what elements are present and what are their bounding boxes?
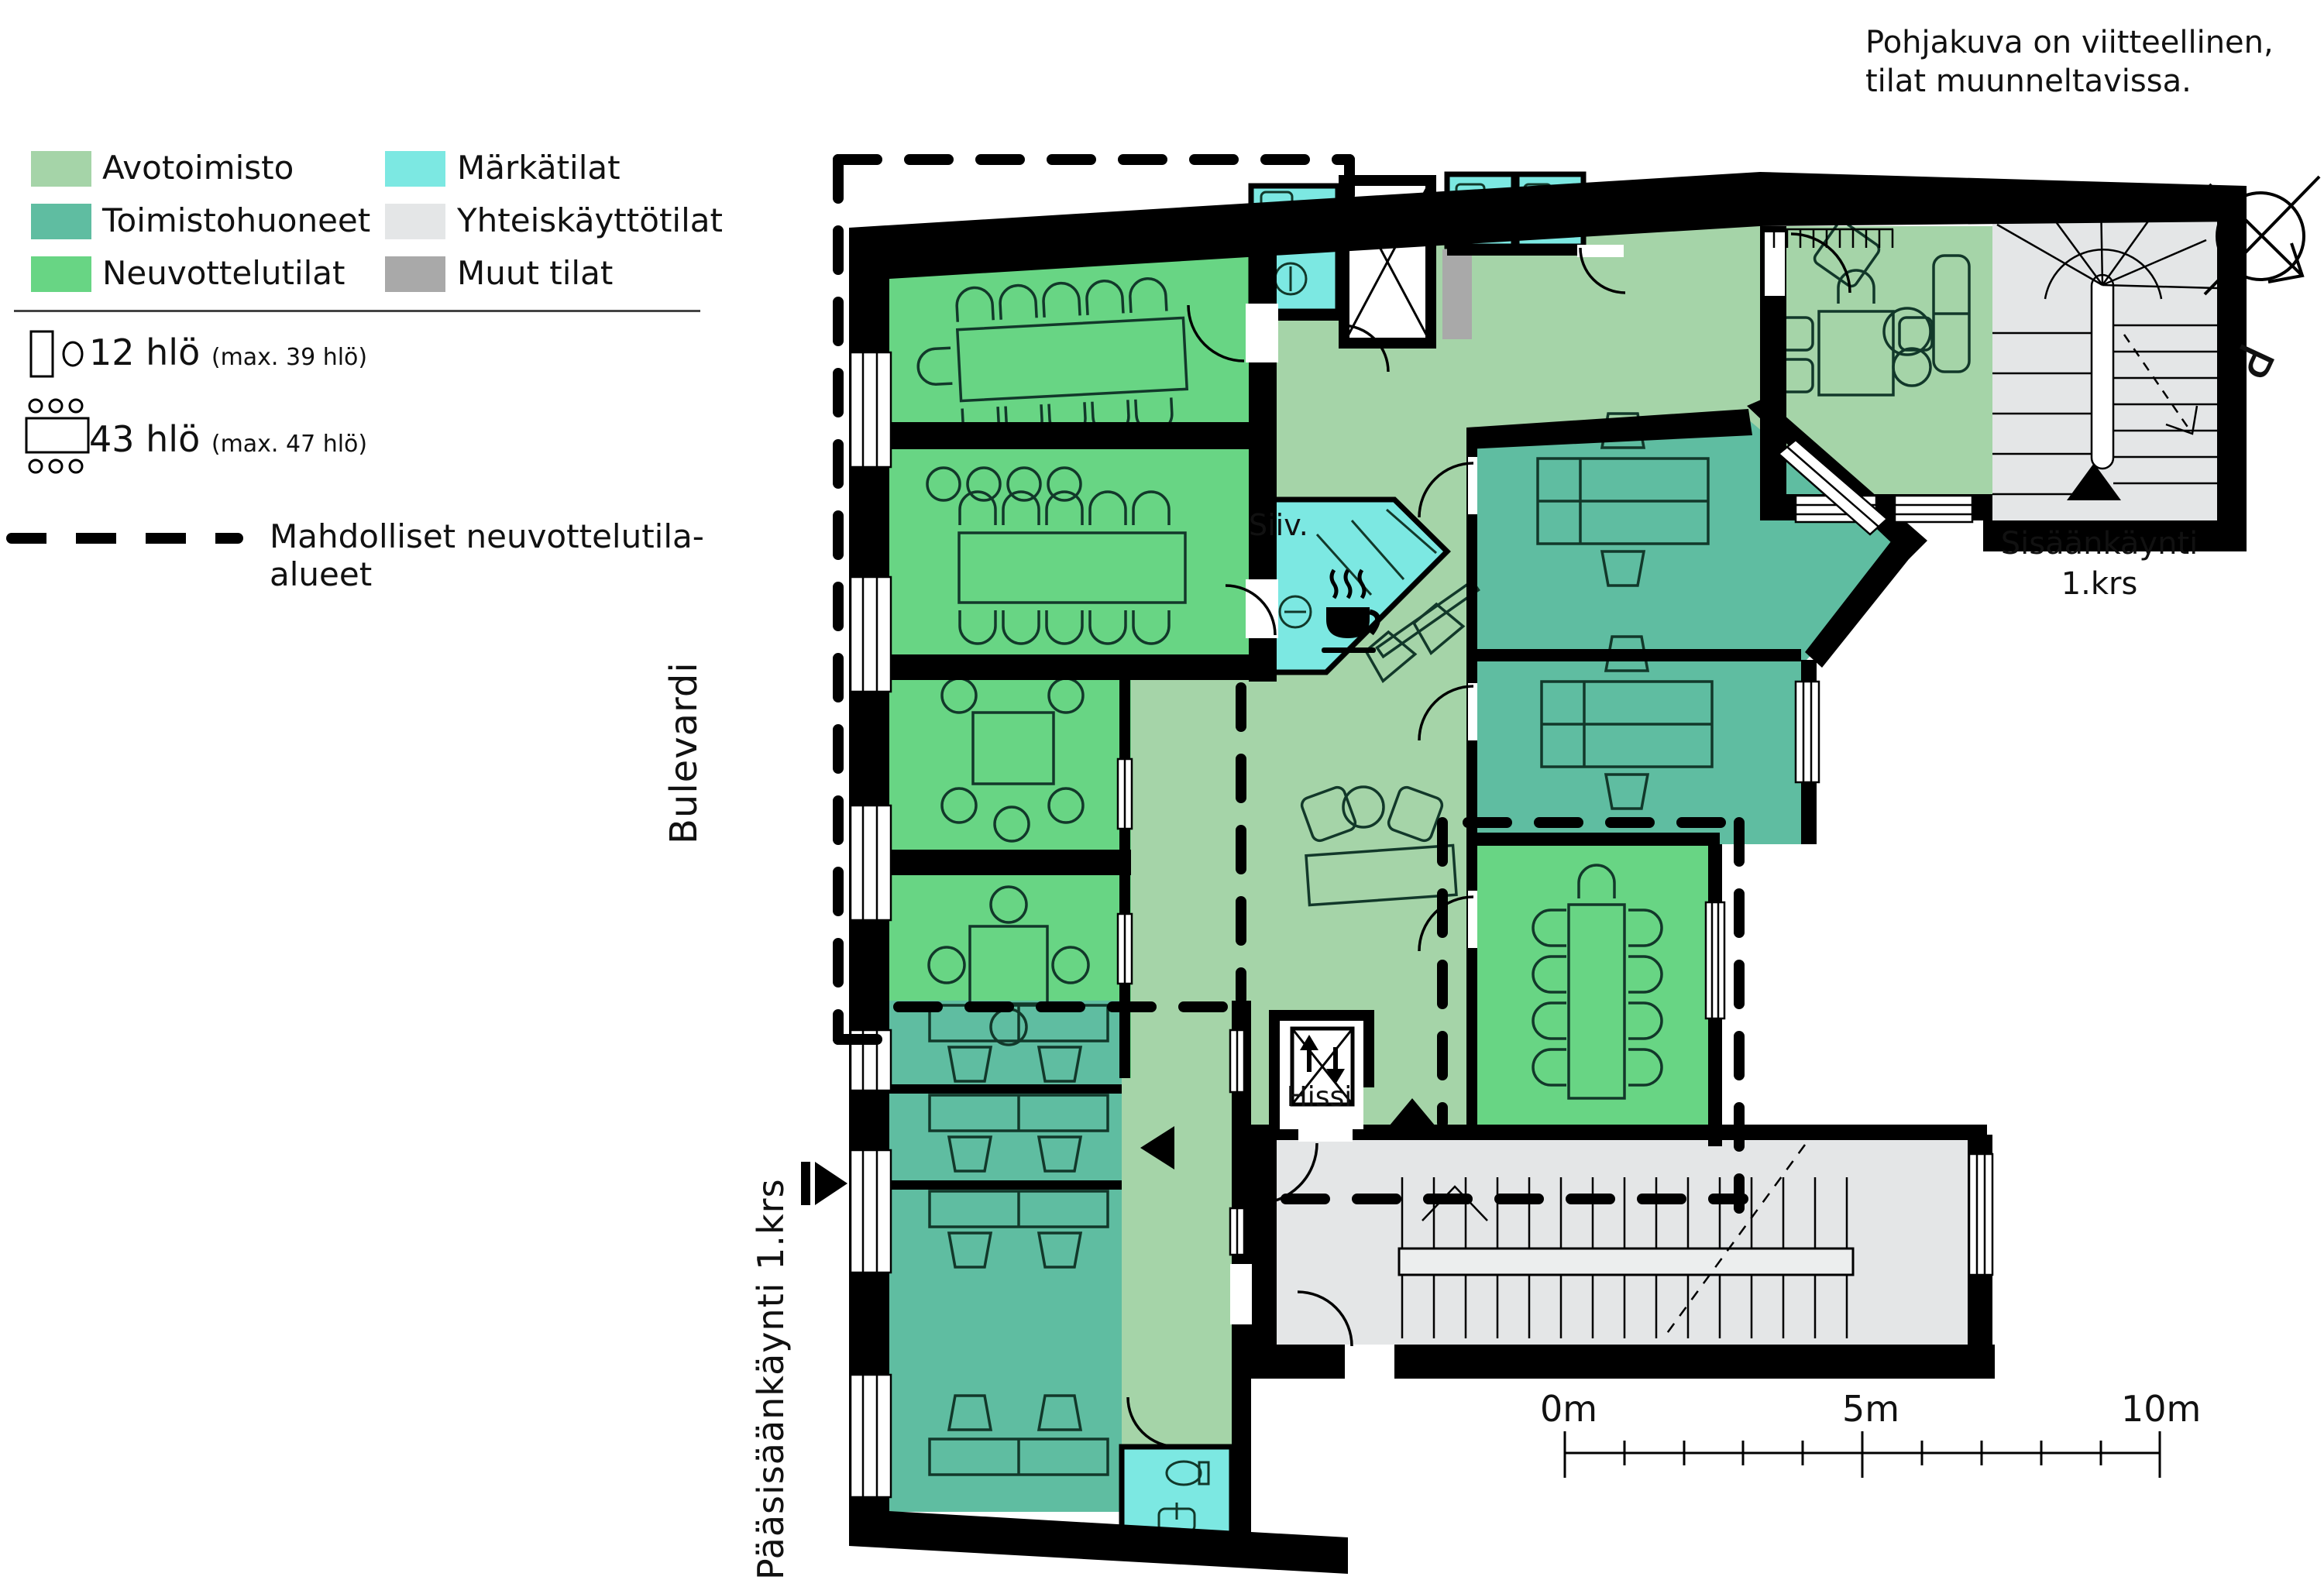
legend-swatch-neuvottelutilat [31, 256, 91, 292]
legend-label-avotoimisto: Avotoimisto [102, 149, 294, 187]
window [1230, 1030, 1244, 1092]
entrance-arrow-main [815, 1162, 847, 1205]
legend-swatch-markatilat [385, 151, 445, 187]
window [1118, 914, 1132, 984]
elevator-icon [1280, 1021, 1363, 1129]
window [1230, 1208, 1244, 1255]
window [1895, 496, 1972, 522]
floorplan-page: { "disclaimer": "Pohjakuva on viitteelli… [0, 0, 2324, 1578]
other-spaces [1442, 249, 1472, 339]
elevator-label: Hissi [1270, 1081, 1368, 1113]
window [851, 577, 891, 692]
dashed-line-sample [6, 533, 243, 544]
window [851, 1375, 891, 1497]
entrance-label: Sisäänkäynti 1.krs [1952, 524, 2247, 604]
scale-0m: 0m [1540, 1388, 1597, 1430]
room-meeting-2 [889, 448, 1249, 654]
window [851, 1150, 891, 1273]
legend-swatch-avotoimisto [31, 151, 91, 187]
room-meeting-5 [1476, 844, 1708, 1135]
window [1118, 759, 1132, 829]
scale-5m: 5m [1842, 1388, 1899, 1430]
disclaimer-text: Pohjakuva on viitteellinen, tilat muunne… [1865, 23, 2315, 101]
legend: Avotoimisto Toimistohuoneet Neuvotteluti… [0, 0, 744, 589]
legend-swatch-muut-tilat [385, 256, 445, 292]
window [1706, 902, 1724, 1018]
legend-label-toimistohuoneet: Toimistohuoneet [102, 201, 370, 239]
legend-label-yhteiskayttotilat: Yhteiskäyttötilat [457, 201, 723, 239]
legend-label-neuvottelutilat: Neuvottelutilat [102, 254, 346, 292]
window [1796, 682, 1819, 782]
legend-divider [14, 310, 700, 312]
capacity-12: 12 hlö (max. 39 hlö) [89, 331, 367, 373]
entrance-arrow-main-bar [801, 1162, 810, 1205]
stair-hall [1251, 1135, 1987, 1348]
legend-swatch-toimistohuoneet [31, 204, 91, 239]
room-office-5 [1476, 660, 1801, 844]
main-entrance-label: Pääsisäänkäynti 1.krs [750, 1178, 792, 1580]
window [1969, 1154, 1992, 1275]
cleaning-room-label: Siiv. [1249, 508, 1308, 542]
scale-10m: 10m [2121, 1388, 2201, 1430]
dashed-line-label: Mahdolliset neuvottelutila-alueet [270, 517, 744, 593]
room-office-3 [889, 1187, 1122, 1512]
room-office-2 [889, 1091, 1122, 1187]
legend-label-markatilat: Märkätilat [457, 149, 621, 187]
window [851, 352, 891, 467]
room-meeting-3 [889, 680, 1131, 850]
legend-swatch-yhteiskayttotilat [385, 204, 445, 239]
scale-bar [1565, 1431, 2160, 1478]
legend-label-muut-tilat: Muut tilat [457, 254, 613, 292]
single-seat-icon [28, 325, 98, 387]
capacity-43: 43 hlö (max. 47 hlö) [89, 418, 367, 460]
street-label: Bulevardi [662, 661, 706, 844]
window [851, 805, 891, 920]
